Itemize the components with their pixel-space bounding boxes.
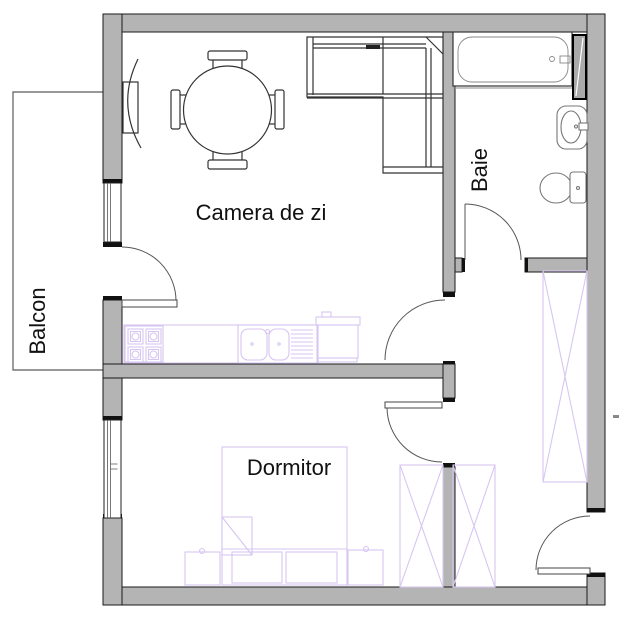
- living-room-label: Camera de zi: [196, 200, 327, 225]
- sink-drainboard: [291, 330, 313, 358]
- wall-bath-bottom: [525, 258, 587, 272]
- bedroom-label: Dormitor: [247, 455, 331, 480]
- sink-faucet: [266, 330, 270, 334]
- floor-plan: Camera de zi Dormitor Baie Balcon: [0, 0, 621, 621]
- wall-right-lower: [587, 573, 605, 605]
- wall-top: [103, 14, 605, 32]
- balcony-door-swing: [122, 247, 176, 301]
- wardrobes: [400, 271, 587, 587]
- wall-cap: [525, 258, 528, 272]
- pillow-left: [232, 552, 282, 583]
- bedroom-door-swing: [387, 408, 442, 462]
- bedroom-door-leaf: [385, 402, 442, 408]
- bathroom-label: Baie: [467, 148, 492, 192]
- wall-kitchen-bedroom: [103, 364, 455, 378]
- wall-bath-stub: [455, 258, 462, 272]
- washbasin-bowl: [561, 111, 581, 143]
- sofa-mark: [366, 45, 380, 49]
- corner-sofa: [307, 37, 443, 173]
- curtain-radiator: [123, 59, 141, 148]
- wall-cap: [443, 292, 455, 297]
- burner: [128, 347, 143, 362]
- wall-left-lower: [103, 518, 122, 605]
- wardrobe-hall: [453, 465, 495, 587]
- washbasin-faucet: [579, 123, 588, 130]
- wall-cap: [587, 508, 605, 512]
- nightstand-right: [348, 550, 383, 585]
- pillow-right: [286, 552, 337, 583]
- wall-cap: [462, 258, 465, 272]
- wall-cap: [103, 416, 122, 420]
- wall-right-upper: [587, 14, 605, 512]
- wall-hall-upper: [443, 364, 455, 398]
- sink-basin-right: [269, 329, 289, 360]
- burner: [146, 347, 161, 362]
- bathtub: [453, 32, 572, 88]
- kitchen: [124, 312, 360, 363]
- dimension-tick: [613, 415, 619, 418]
- doors: [122, 204, 590, 574]
- wardrobe-bedroom: [400, 465, 443, 587]
- burner: [128, 329, 143, 344]
- bathroom-door-swing: [465, 204, 521, 260]
- wall-cap: [443, 361, 455, 364]
- wall-bottom: [103, 587, 605, 605]
- dining-set: [171, 51, 284, 169]
- entrance-door-leaf: [538, 568, 590, 574]
- dining-table: [184, 66, 272, 154]
- toilet: [540, 172, 586, 203]
- washbasin: [557, 106, 588, 149]
- washing-machine: [316, 312, 360, 362]
- balcony-label: Balcon: [25, 287, 50, 354]
- sink-basin-left: [241, 329, 267, 360]
- wall-cap: [103, 242, 122, 247]
- cooktop: [125, 326, 163, 362]
- wall-left-middle: [103, 300, 122, 420]
- wall-left-upper: [103, 14, 122, 183]
- wardrobe-tall: [543, 271, 587, 482]
- wall-cap: [443, 398, 455, 402]
- floor-plan-drawing: Camera de zi Dormitor Baie Balcon: [0, 0, 621, 621]
- wall-cap: [103, 296, 122, 300]
- balcony-door-leaf: [122, 300, 177, 307]
- burner: [146, 329, 161, 344]
- wall-cap: [103, 179, 122, 183]
- shower-screen: [573, 35, 586, 99]
- kitchen-sink: [238, 325, 317, 363]
- toilet-bowl: [540, 173, 572, 203]
- living-window: [104, 183, 121, 242]
- entrance-door-swing: [536, 516, 590, 570]
- nightstand-left: [185, 552, 220, 585]
- living-door-swing: [385, 300, 445, 360]
